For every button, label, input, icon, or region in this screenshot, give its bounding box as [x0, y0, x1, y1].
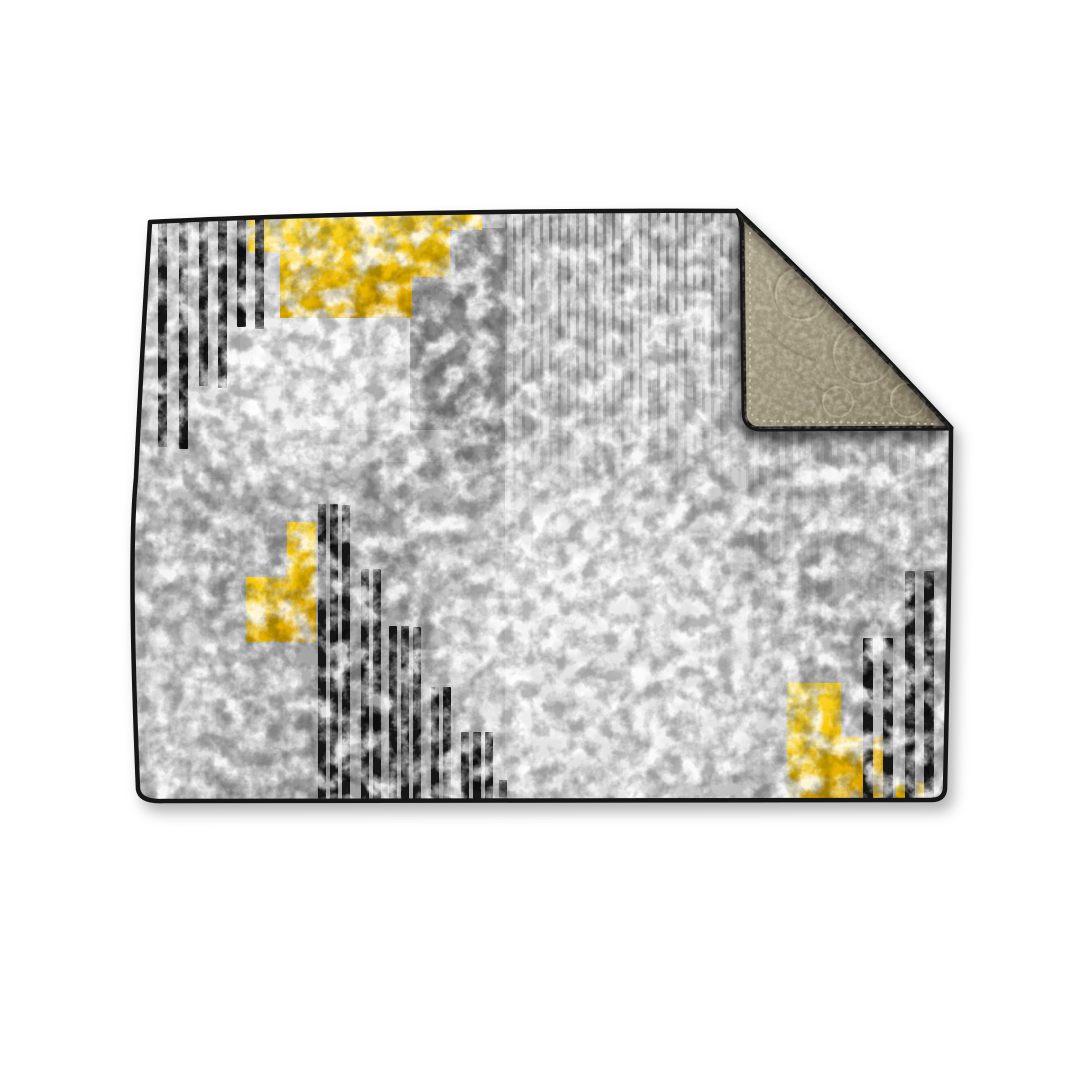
texture-overlay-dark	[120, 195, 970, 820]
rug-front	[100, 195, 970, 820]
folded-corner	[730, 200, 970, 440]
product-photo-canvas	[0, 0, 1080, 1080]
rug-product-photo	[0, 0, 1080, 1080]
flap-edge-shading	[744, 222, 745, 420]
rug	[100, 195, 970, 820]
